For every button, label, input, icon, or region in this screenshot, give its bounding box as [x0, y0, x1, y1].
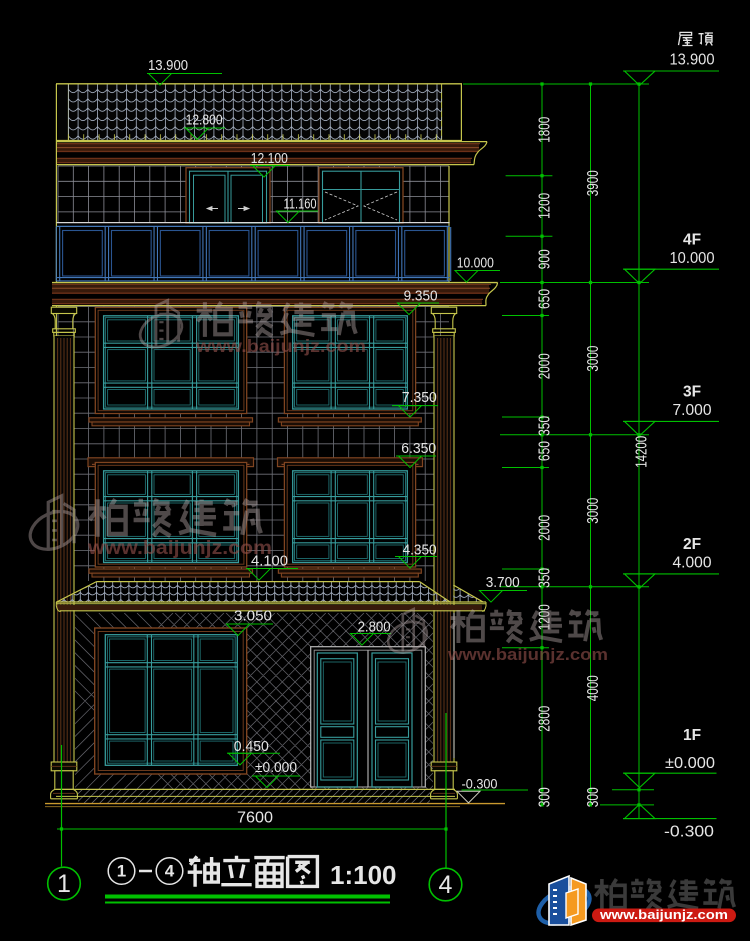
svg-text:650: 650 [537, 441, 554, 461]
svg-text:7.000: 7.000 [673, 402, 712, 419]
svg-text:350: 350 [537, 568, 554, 588]
svg-text:-0.300: -0.300 [664, 824, 714, 841]
svg-text:3900: 3900 [585, 170, 602, 196]
svg-text:2F: 2F [683, 536, 701, 553]
svg-text:650: 650 [537, 289, 554, 309]
svg-text:7600: 7600 [237, 810, 273, 827]
svg-text:1: 1 [117, 862, 126, 881]
svg-text:4000: 4000 [585, 675, 602, 701]
svg-text:6.350: 6.350 [401, 441, 436, 457]
svg-text:900: 900 [537, 249, 554, 269]
svg-text:4F: 4F [683, 232, 701, 249]
svg-text:300: 300 [537, 787, 554, 807]
svg-text:www.baijunjz.com: www.baijunjz.com [195, 336, 366, 356]
svg-text:±0.000: ±0.000 [665, 755, 715, 772]
svg-text:12.100: 12.100 [251, 151, 288, 167]
svg-text:3F: 3F [683, 384, 701, 401]
svg-text:3.700: 3.700 [486, 575, 520, 591]
svg-text:14200: 14200 [634, 436, 651, 468]
svg-text:10.000: 10.000 [670, 250, 715, 267]
svg-text:9.350: 9.350 [404, 289, 438, 305]
svg-text:7.350: 7.350 [402, 390, 437, 406]
svg-text:4: 4 [165, 862, 175, 881]
svg-text:1800: 1800 [537, 117, 554, 143]
svg-text:2000: 2000 [537, 515, 554, 541]
svg-text:350: 350 [537, 416, 554, 436]
svg-text:3.050: 3.050 [234, 609, 272, 625]
svg-text:300: 300 [585, 787, 602, 807]
svg-text:±0.000: ±0.000 [255, 760, 297, 776]
svg-text:13.900: 13.900 [148, 58, 188, 74]
svg-text:0.450: 0.450 [234, 739, 269, 755]
svg-text:1:100: 1:100 [330, 860, 397, 890]
svg-text:13.900: 13.900 [670, 52, 715, 69]
svg-text:-0.300: -0.300 [462, 776, 498, 792]
svg-text:2800: 2800 [537, 705, 554, 731]
svg-text:www.baijunjz.com: www.baijunjz.com [87, 538, 272, 559]
svg-text:2000: 2000 [537, 353, 554, 379]
svg-text:1: 1 [57, 870, 71, 898]
svg-text:3000: 3000 [585, 345, 602, 371]
svg-text:1F: 1F [683, 727, 701, 744]
svg-text:10.000: 10.000 [457, 256, 494, 272]
svg-text:www.baijunjz.com: www.baijunjz.com [447, 646, 608, 664]
svg-text:4.000: 4.000 [673, 555, 712, 572]
svg-text:11.160: 11.160 [284, 197, 317, 213]
svg-text:1200: 1200 [537, 193, 554, 219]
svg-text:3000: 3000 [585, 498, 602, 524]
svg-text:12.800: 12.800 [186, 113, 223, 129]
svg-text:4: 4 [439, 871, 453, 899]
svg-text:www.baijunjz.com: www.baijunjz.com [599, 907, 728, 922]
